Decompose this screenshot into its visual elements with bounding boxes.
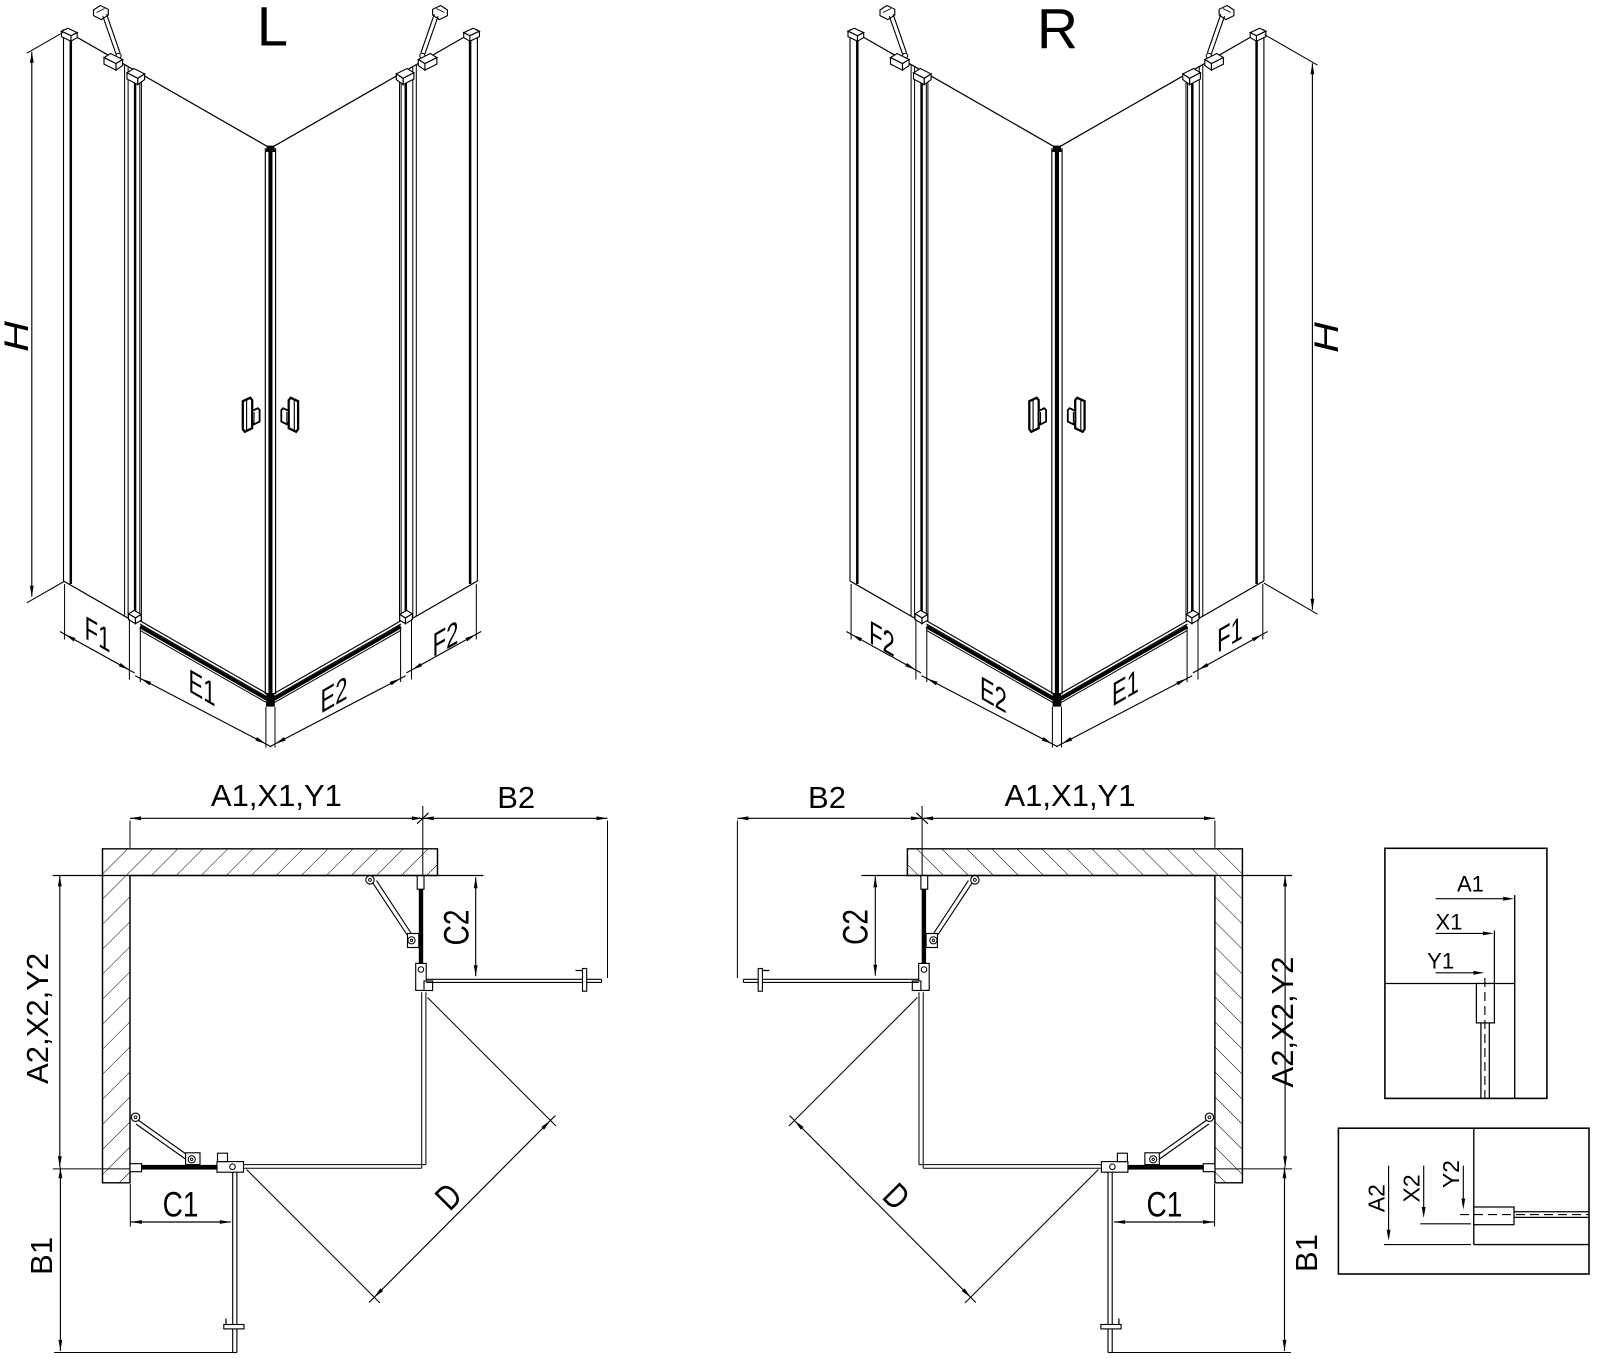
svg-text:F2: F2 xyxy=(869,613,895,665)
svg-text:H: H xyxy=(1308,322,1346,353)
svg-text:B2: B2 xyxy=(808,780,846,815)
svg-text:X2: X2 xyxy=(1399,1174,1425,1202)
svg-text:Y1: Y1 xyxy=(1427,949,1454,974)
svg-text:A1,X1,Y1: A1,X1,Y1 xyxy=(211,778,342,813)
svg-text:D: D xyxy=(427,1175,469,1217)
svg-text:A2,X2,Y2: A2,X2,Y2 xyxy=(1265,957,1300,1088)
svg-text:C1: C1 xyxy=(1147,1185,1183,1225)
svg-text:F2: F2 xyxy=(433,613,459,665)
svg-text:B2: B2 xyxy=(497,780,535,815)
svg-text:F1: F1 xyxy=(1217,609,1243,661)
svg-text:F1: F1 xyxy=(85,609,111,661)
svg-text:E2: E2 xyxy=(321,669,348,722)
svg-text:C1: C1 xyxy=(163,1185,199,1225)
svg-text:E2: E2 xyxy=(980,669,1007,722)
svg-text:A2,X2,Y2: A2,X2,Y2 xyxy=(20,953,55,1084)
svg-text:D: D xyxy=(875,1175,917,1217)
svg-text:R: R xyxy=(1037,0,1078,61)
svg-text:A2: A2 xyxy=(1364,1184,1390,1212)
svg-text:E1: E1 xyxy=(189,662,216,715)
svg-text:A1,X1,Y1: A1,X1,Y1 xyxy=(1005,778,1136,813)
svg-text:B1: B1 xyxy=(24,1237,59,1275)
svg-text:B1: B1 xyxy=(1289,1234,1324,1272)
svg-text:X1: X1 xyxy=(1436,909,1463,934)
svg-text:C2: C2 xyxy=(437,910,477,946)
svg-text:H: H xyxy=(0,321,36,352)
svg-text:Y2: Y2 xyxy=(1438,1160,1464,1188)
svg-text:E1: E1 xyxy=(1112,662,1139,715)
svg-text:A1: A1 xyxy=(1457,872,1484,897)
svg-text:C2: C2 xyxy=(836,909,876,945)
svg-text:L: L xyxy=(257,0,288,58)
